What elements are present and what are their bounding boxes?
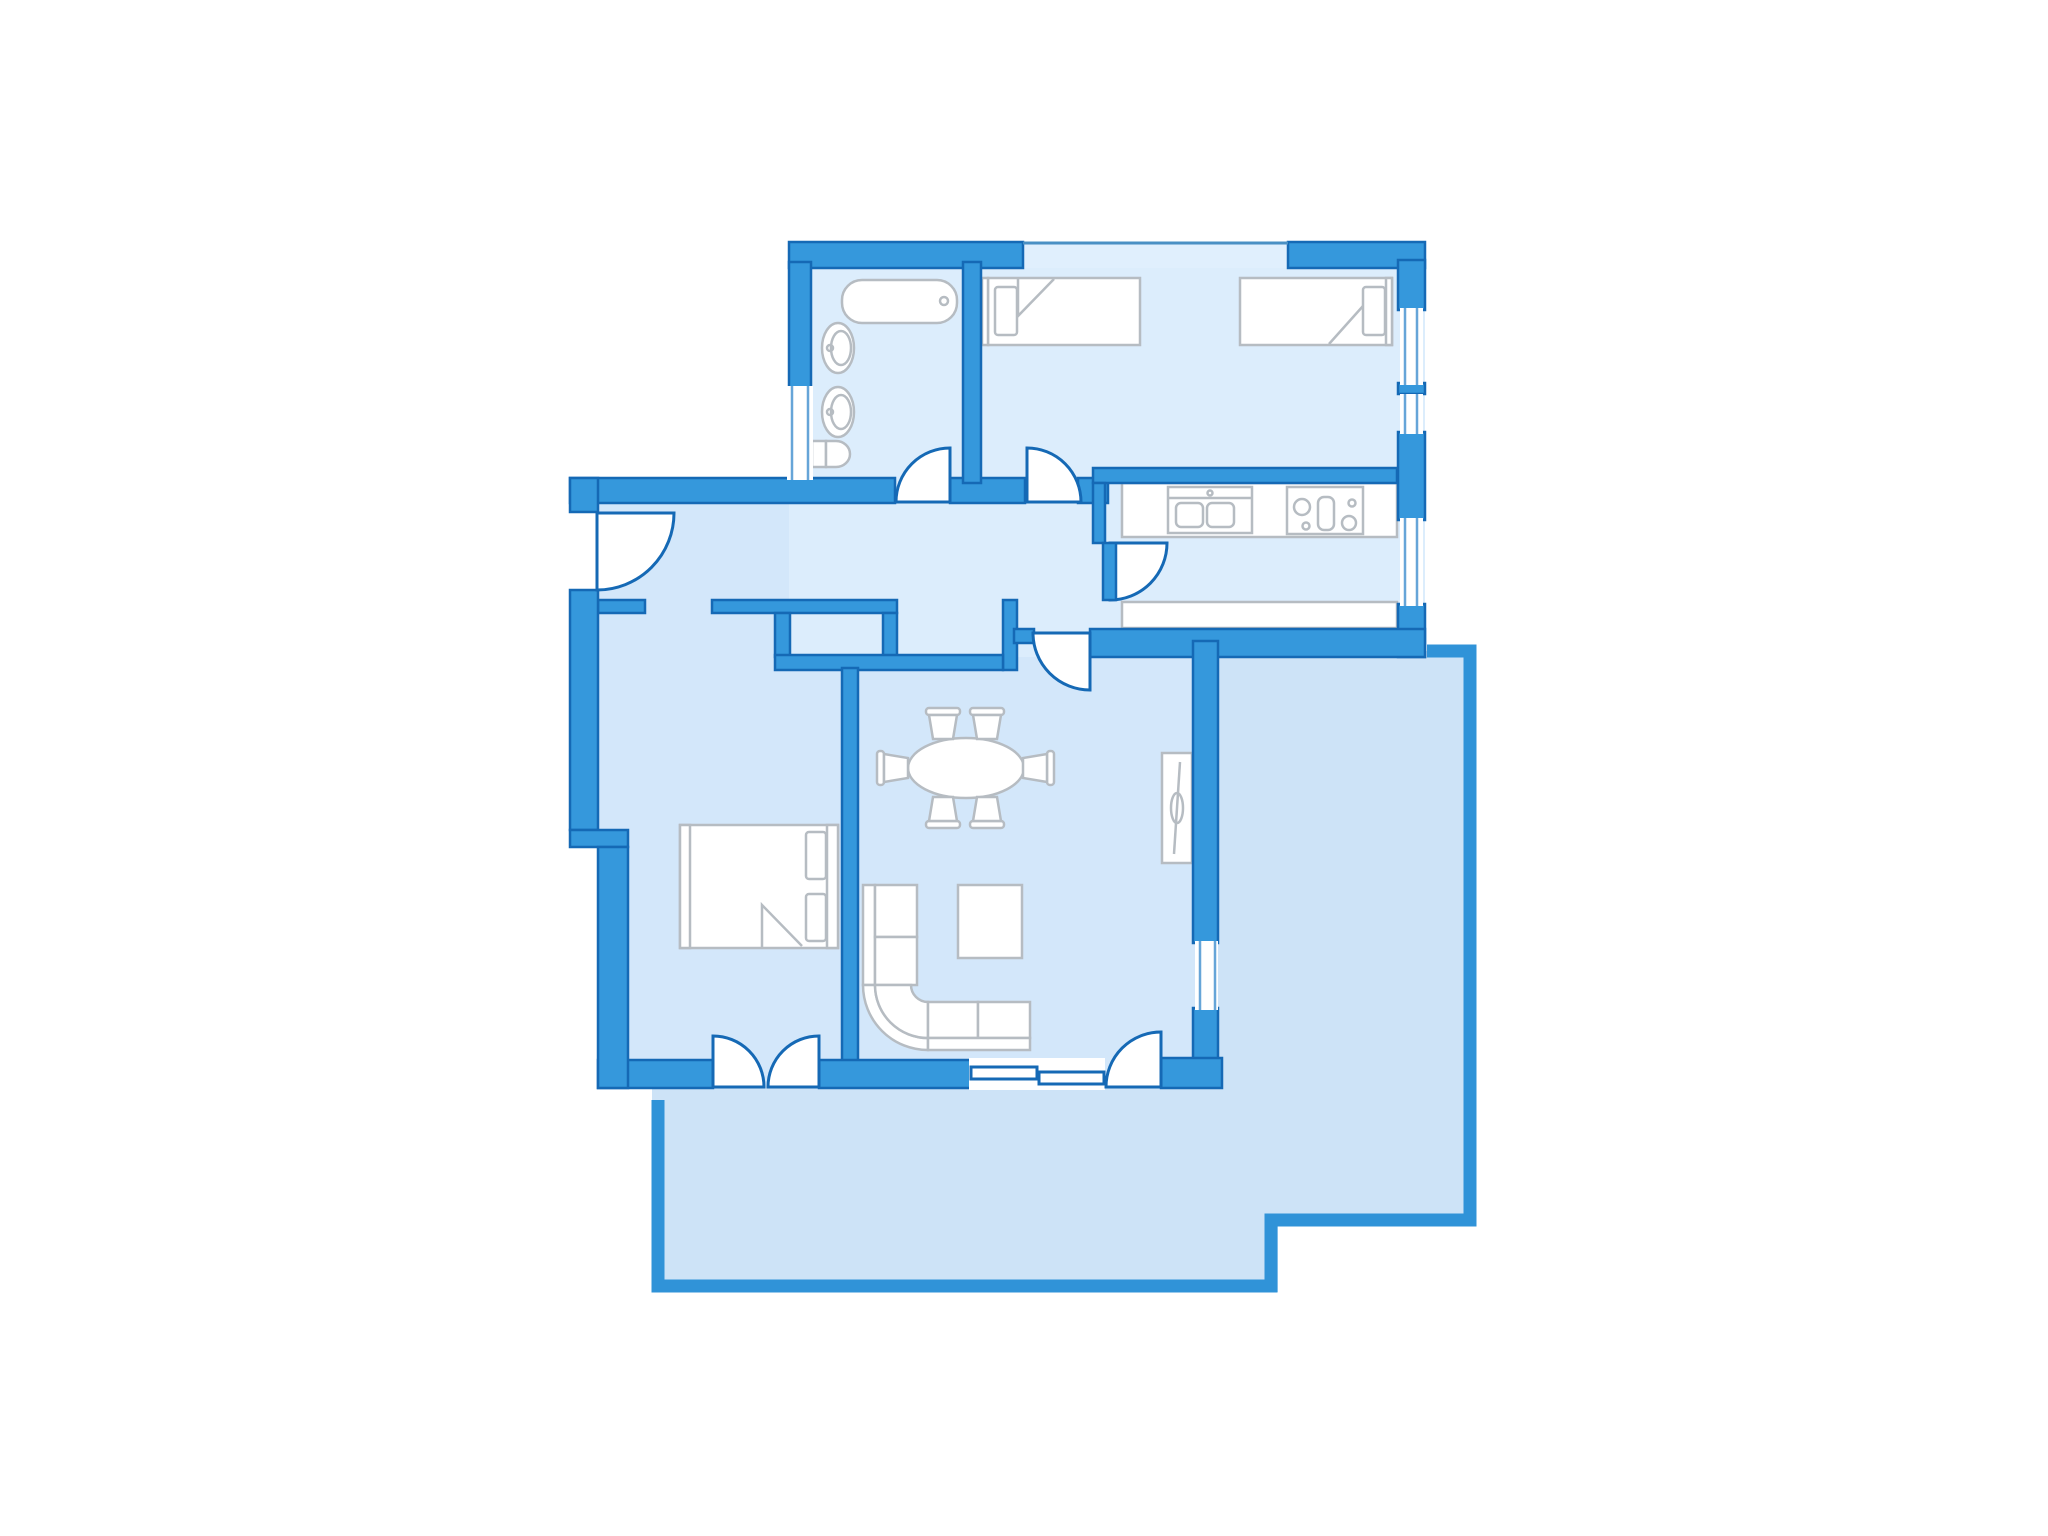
bathroom-top-wall bbox=[789, 242, 1023, 268]
kitchen-window bbox=[1400, 518, 1423, 606]
kitchen-bottom-wall bbox=[1090, 629, 1425, 657]
terrace-right-area bbox=[1218, 651, 1470, 1225]
hall-top-wall-a bbox=[570, 478, 895, 503]
left-wall-jog bbox=[570, 830, 628, 847]
kitchen-counter-bottom bbox=[1122, 602, 1397, 628]
coffee-table bbox=[958, 885, 1022, 958]
left-wall-lower bbox=[598, 847, 628, 1088]
kitchen-top-wall bbox=[1093, 468, 1397, 483]
hall-post-b bbox=[1014, 629, 1034, 643]
floor-plan-svg bbox=[0, 0, 2048, 1536]
double-bed-headboard bbox=[827, 825, 838, 948]
hall-bottom-wall-b bbox=[712, 600, 897, 613]
hall-top-wall-b bbox=[950, 478, 1025, 503]
chair-seat bbox=[973, 797, 1001, 821]
sofa-cushion bbox=[928, 1002, 978, 1038]
living-right-wall bbox=[1193, 641, 1218, 943]
left-wall-mid bbox=[570, 590, 598, 830]
sofa-cushion bbox=[875, 885, 917, 937]
kitchen-left-stub bbox=[1093, 483, 1105, 543]
bedroom-window-b bbox=[1400, 394, 1423, 434]
floor-plan bbox=[0, 0, 2048, 1536]
bedroom-window-a bbox=[1400, 308, 1423, 385]
sliding-door-panel-b bbox=[1039, 1072, 1104, 1084]
sofa-cushion bbox=[978, 1002, 1030, 1038]
toilet-bowl bbox=[826, 441, 850, 467]
sliding-door-panel-a bbox=[971, 1067, 1037, 1079]
dining-table bbox=[908, 738, 1024, 798]
living-bottom-wall bbox=[819, 1060, 971, 1088]
right-wall-top-block bbox=[1398, 260, 1425, 310]
living-right-wall-lower bbox=[1193, 1008, 1218, 1063]
kitchen-door-leaf bbox=[1103, 543, 1116, 600]
hall-bottom-wall-a bbox=[598, 600, 645, 613]
sofa-cushion bbox=[875, 937, 917, 985]
terrace-lower-area bbox=[652, 1088, 1278, 1292]
single-bed-2-headboard bbox=[1386, 278, 1392, 345]
bath-bedroom-divider bbox=[963, 262, 981, 483]
shaft-left-wall bbox=[775, 613, 790, 657]
sofa-back-bottom bbox=[928, 1038, 1030, 1050]
double-bed-footboard bbox=[680, 825, 690, 948]
chair-seat bbox=[929, 797, 957, 821]
living-corner-block bbox=[1161, 1058, 1222, 1088]
right-wall-mid-block bbox=[1398, 432, 1425, 520]
left-wall-upper bbox=[570, 478, 598, 512]
toilet-tank bbox=[812, 441, 826, 467]
top-window-band bbox=[1023, 245, 1288, 268]
chair-seat bbox=[1023, 754, 1047, 782]
double-bed bbox=[680, 825, 838, 948]
chair-seat bbox=[884, 754, 908, 782]
sofa-back-left bbox=[863, 885, 875, 985]
chair-seat bbox=[973, 715, 1001, 739]
chair-seat bbox=[929, 715, 957, 739]
single-bed-1-headboard bbox=[982, 278, 988, 345]
shaft-bottom-wall bbox=[775, 655, 1003, 670]
kitchen-counter-top bbox=[1122, 483, 1397, 537]
shaft-right-wall bbox=[883, 613, 897, 657]
bedroom-living-divider bbox=[842, 668, 858, 1063]
bathroom-left-wall bbox=[789, 262, 811, 388]
